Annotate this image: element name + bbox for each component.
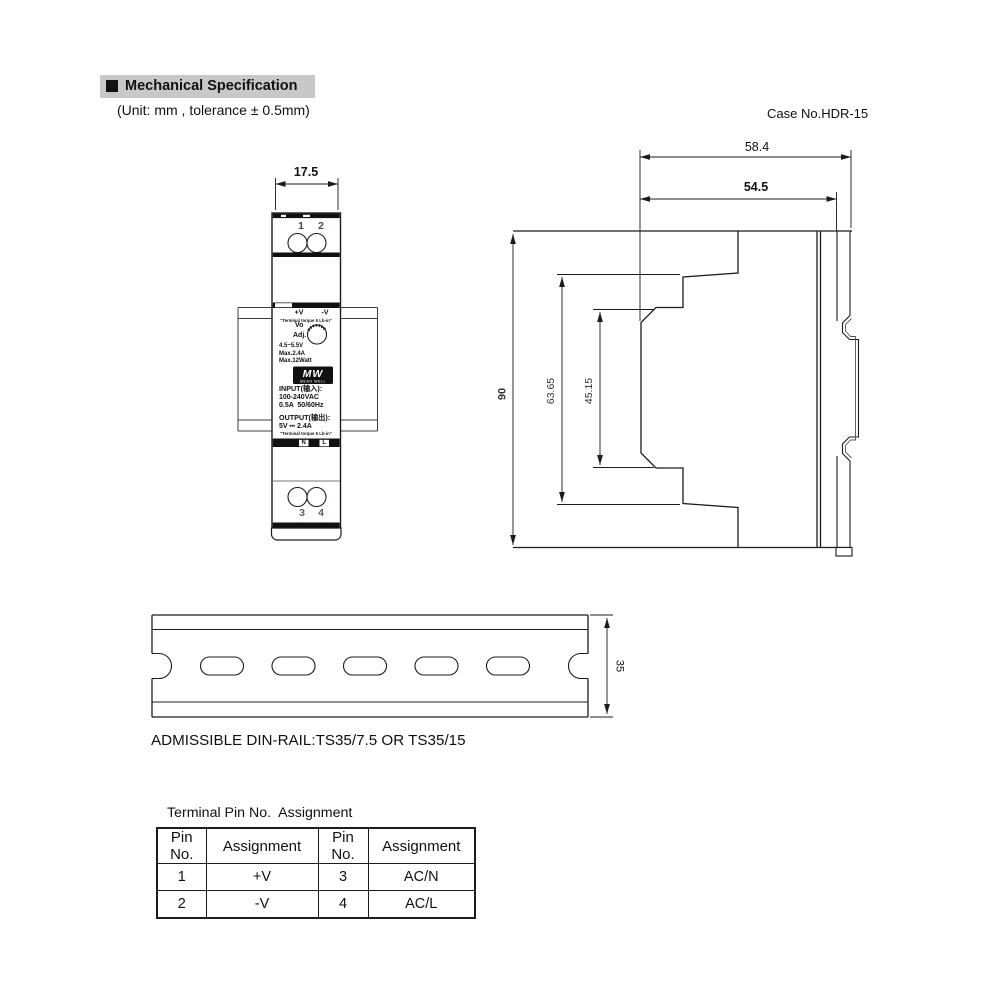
label-neutral: N <box>302 440 306 446</box>
header-pin-no-1: Pin No. <box>157 828 206 864</box>
din-rail-section-outer <box>843 316 859 462</box>
cell-assign-2: -V <box>206 891 318 919</box>
label-adjust-range: 4.5~5.5V <box>279 343 303 349</box>
label-adj: Adj. <box>293 332 306 339</box>
label-torque-note-bottom: "Terminal torque 5 Lb-in" <box>280 431 332 435</box>
cell-assign-3: AC/N <box>368 864 475 891</box>
pin-2-label: 2 <box>318 221 324 232</box>
side-rear-face <box>817 231 821 548</box>
rear-foot <box>836 548 852 557</box>
side-view-drawing <box>513 150 859 556</box>
cell-pin-2: 2 <box>157 891 206 919</box>
label-output-title: OUTPUT(输出): <box>279 414 330 421</box>
pin-1-label: 1 <box>298 221 304 232</box>
header-assignment-2: Assignment <box>368 828 475 864</box>
admissible-rail-note: ADMISSIBLE DIN-RAIL:TS35/7.5 OR TS35/15 <box>151 733 466 748</box>
dim-rail-height-35: 35 <box>614 660 625 672</box>
case-number: Case No.HDR-15 <box>767 107 868 120</box>
dim-width-17-5: 17.5 <box>294 166 318 179</box>
cell-pin-3: 3 <box>318 864 368 891</box>
label-output-rating: 5V ⎓ 2.4A <box>279 423 312 430</box>
mw-logo-text: MW <box>303 368 324 379</box>
label-vo: Vo <box>295 322 303 329</box>
label-plus-v: +V <box>295 309 304 316</box>
header-assignment-1: Assignment <box>206 828 318 864</box>
page-title: Mechanical Specification <box>125 79 297 94</box>
pin-4-label: 4 <box>318 508 324 519</box>
header-pin-no-2: Pin No. <box>318 828 368 864</box>
cell-pin-4: 4 <box>318 891 368 919</box>
rear-bracket <box>837 231 850 548</box>
label-input-title: INPUT(输入): <box>279 385 322 392</box>
bottom-flange <box>272 528 342 540</box>
mechanical-specification-page: Mechanical Specification (Unit: mm , tol… <box>0 0 1000 1000</box>
cell-assign-1: +V <box>206 864 318 891</box>
drawing-linework <box>0 0 1000 1000</box>
pin-table-title: Terminal Pin No. Assignment <box>167 806 352 820</box>
dim-height-90: 90 <box>498 388 509 400</box>
label-input-current: 0.5A 50/60Hz <box>279 402 324 409</box>
pin-assignment-table: Pin No. Assignment Pin No. Assignment 1 … <box>156 827 476 919</box>
cell-pin-1: 1 <box>157 864 206 891</box>
rail-slots <box>152 654 588 679</box>
table-header-row: Pin No. Assignment Pin No. Assignment <box>157 828 475 864</box>
cell-assign-4: AC/L <box>368 891 475 919</box>
unit-tolerance-note: (Unit: mm , tolerance ± 0.5mm) <box>117 103 310 117</box>
dim-upper-63-65: 63.65 <box>546 378 557 404</box>
section-bullet-icon <box>106 80 118 92</box>
dim-inner-45-15: 45.15 <box>584 378 595 404</box>
dim-case-depth-54-5: 54.5 <box>744 181 768 194</box>
din-rail-drawing <box>152 615 613 717</box>
mw-logo-subtext: MEAN WELL <box>300 380 326 384</box>
label-input-voltage: 100-240VAC <box>279 394 319 401</box>
label-max-current: Max.2.4A <box>279 351 305 357</box>
side-front-profile <box>641 231 738 548</box>
dim-total-depth-58-4: 58.4 <box>745 141 769 154</box>
label-max-power: Max.12Watt <box>279 358 312 364</box>
pin-3-label: 3 <box>299 508 305 519</box>
table-row: 2 -V 4 AC/L <box>157 891 475 919</box>
table-row: 1 +V 3 AC/N <box>157 864 475 891</box>
label-torque-note-top: "Terminal torque 5 Lb-in" <box>280 318 332 322</box>
label-line: L <box>322 440 326 446</box>
label-minus-v: -V <box>322 309 329 316</box>
